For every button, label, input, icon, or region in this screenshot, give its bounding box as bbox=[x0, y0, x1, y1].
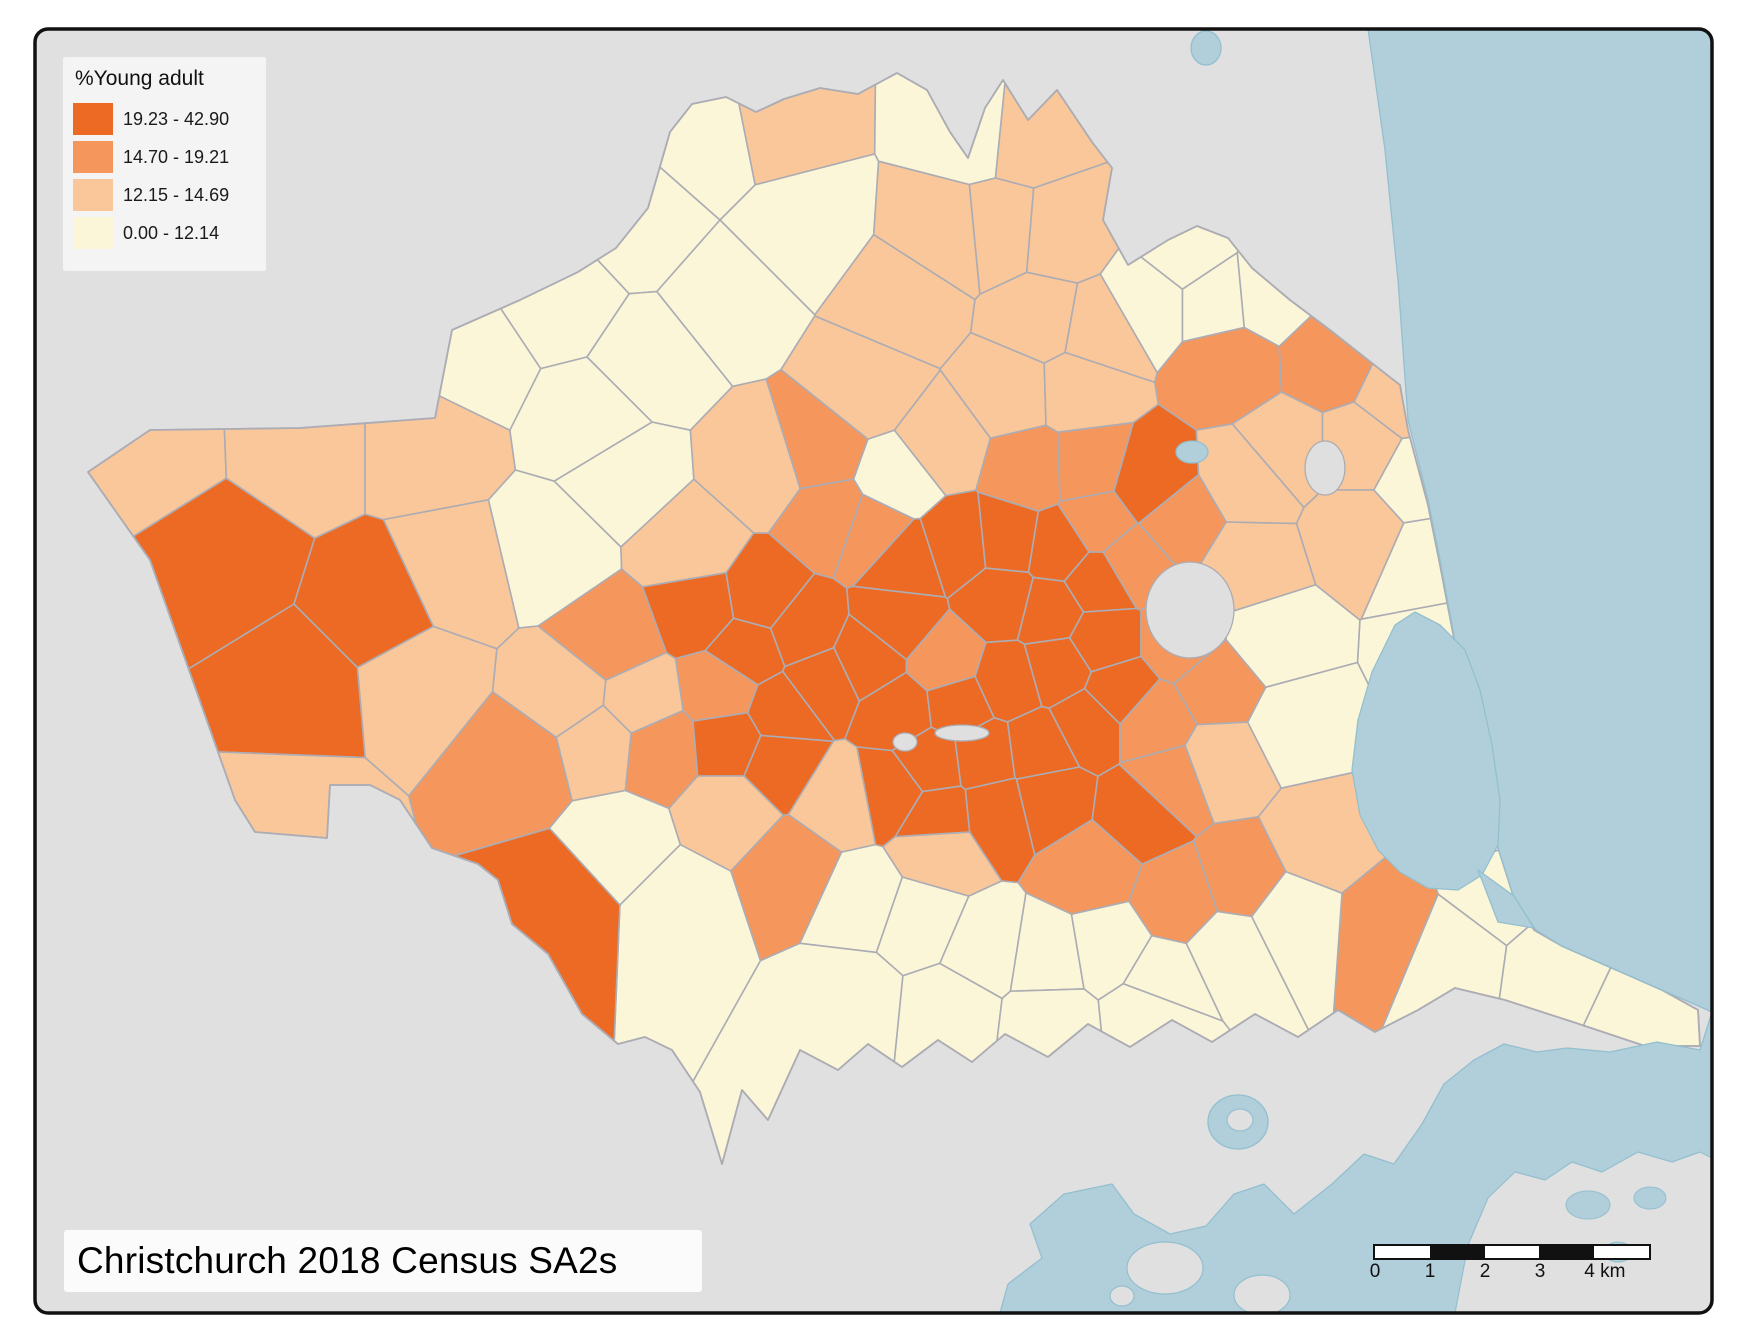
legend-item: 19.23 - 42.90 bbox=[73, 103, 256, 135]
scalebar-labels: 0 1 2 3 4 km bbox=[1373, 1261, 1649, 1283]
island bbox=[1110, 1286, 1134, 1306]
scalebar-label: 3 bbox=[1535, 1261, 1546, 1283]
legend-swatch-class1 bbox=[73, 103, 113, 135]
island bbox=[1227, 1109, 1253, 1131]
map-title-box: Christchurch 2018 Census SA2s bbox=[64, 1230, 702, 1292]
legend-item: 0.00 - 12.14 bbox=[73, 217, 256, 249]
scalebar-segment bbox=[1485, 1246, 1540, 1258]
park-area bbox=[1146, 562, 1234, 658]
legend-label: 0.00 - 12.14 bbox=[123, 223, 219, 244]
legend-label: 19.23 - 42.90 bbox=[123, 109, 229, 130]
scalebar-label: 0 bbox=[1370, 1261, 1381, 1283]
lake bbox=[1566, 1191, 1610, 1219]
scalebar-bar bbox=[1373, 1244, 1651, 1260]
map-figure: %Young adult 19.23 - 42.90 14.70 - 19.21… bbox=[0, 0, 1747, 1344]
park-area bbox=[1305, 441, 1345, 495]
legend-swatch-class3 bbox=[73, 179, 113, 211]
island bbox=[1127, 1242, 1203, 1294]
lake bbox=[1176, 441, 1208, 463]
legend-swatch-class4 bbox=[73, 217, 113, 249]
legend-item: 12.15 - 14.69 bbox=[73, 179, 256, 211]
legend-label: 12.15 - 14.69 bbox=[123, 185, 229, 206]
lake bbox=[1634, 1187, 1666, 1209]
scalebar-segment bbox=[1375, 1246, 1430, 1258]
lake bbox=[1191, 31, 1221, 65]
park-area bbox=[893, 733, 917, 751]
scalebar-label: 2 bbox=[1480, 1261, 1491, 1283]
scalebar-segment bbox=[1594, 1246, 1649, 1258]
legend-item: 14.70 - 19.21 bbox=[73, 141, 256, 173]
scalebar-segment bbox=[1430, 1246, 1485, 1258]
scalebar: 0 1 2 3 4 km bbox=[1373, 1244, 1649, 1283]
map-title: Christchurch 2018 Census SA2s bbox=[64, 1240, 618, 1282]
legend-label: 14.70 - 19.21 bbox=[123, 147, 229, 168]
island bbox=[1234, 1275, 1290, 1315]
legend-title: %Young adult bbox=[75, 67, 256, 91]
park-area bbox=[935, 725, 989, 741]
scalebar-label: 4 km bbox=[1584, 1261, 1625, 1283]
legend-swatch-class2 bbox=[73, 141, 113, 173]
legend-panel: %Young adult 19.23 - 42.90 14.70 - 19.21… bbox=[63, 57, 266, 271]
scalebar-label: 1 bbox=[1425, 1261, 1436, 1283]
scalebar-segment bbox=[1539, 1246, 1594, 1258]
